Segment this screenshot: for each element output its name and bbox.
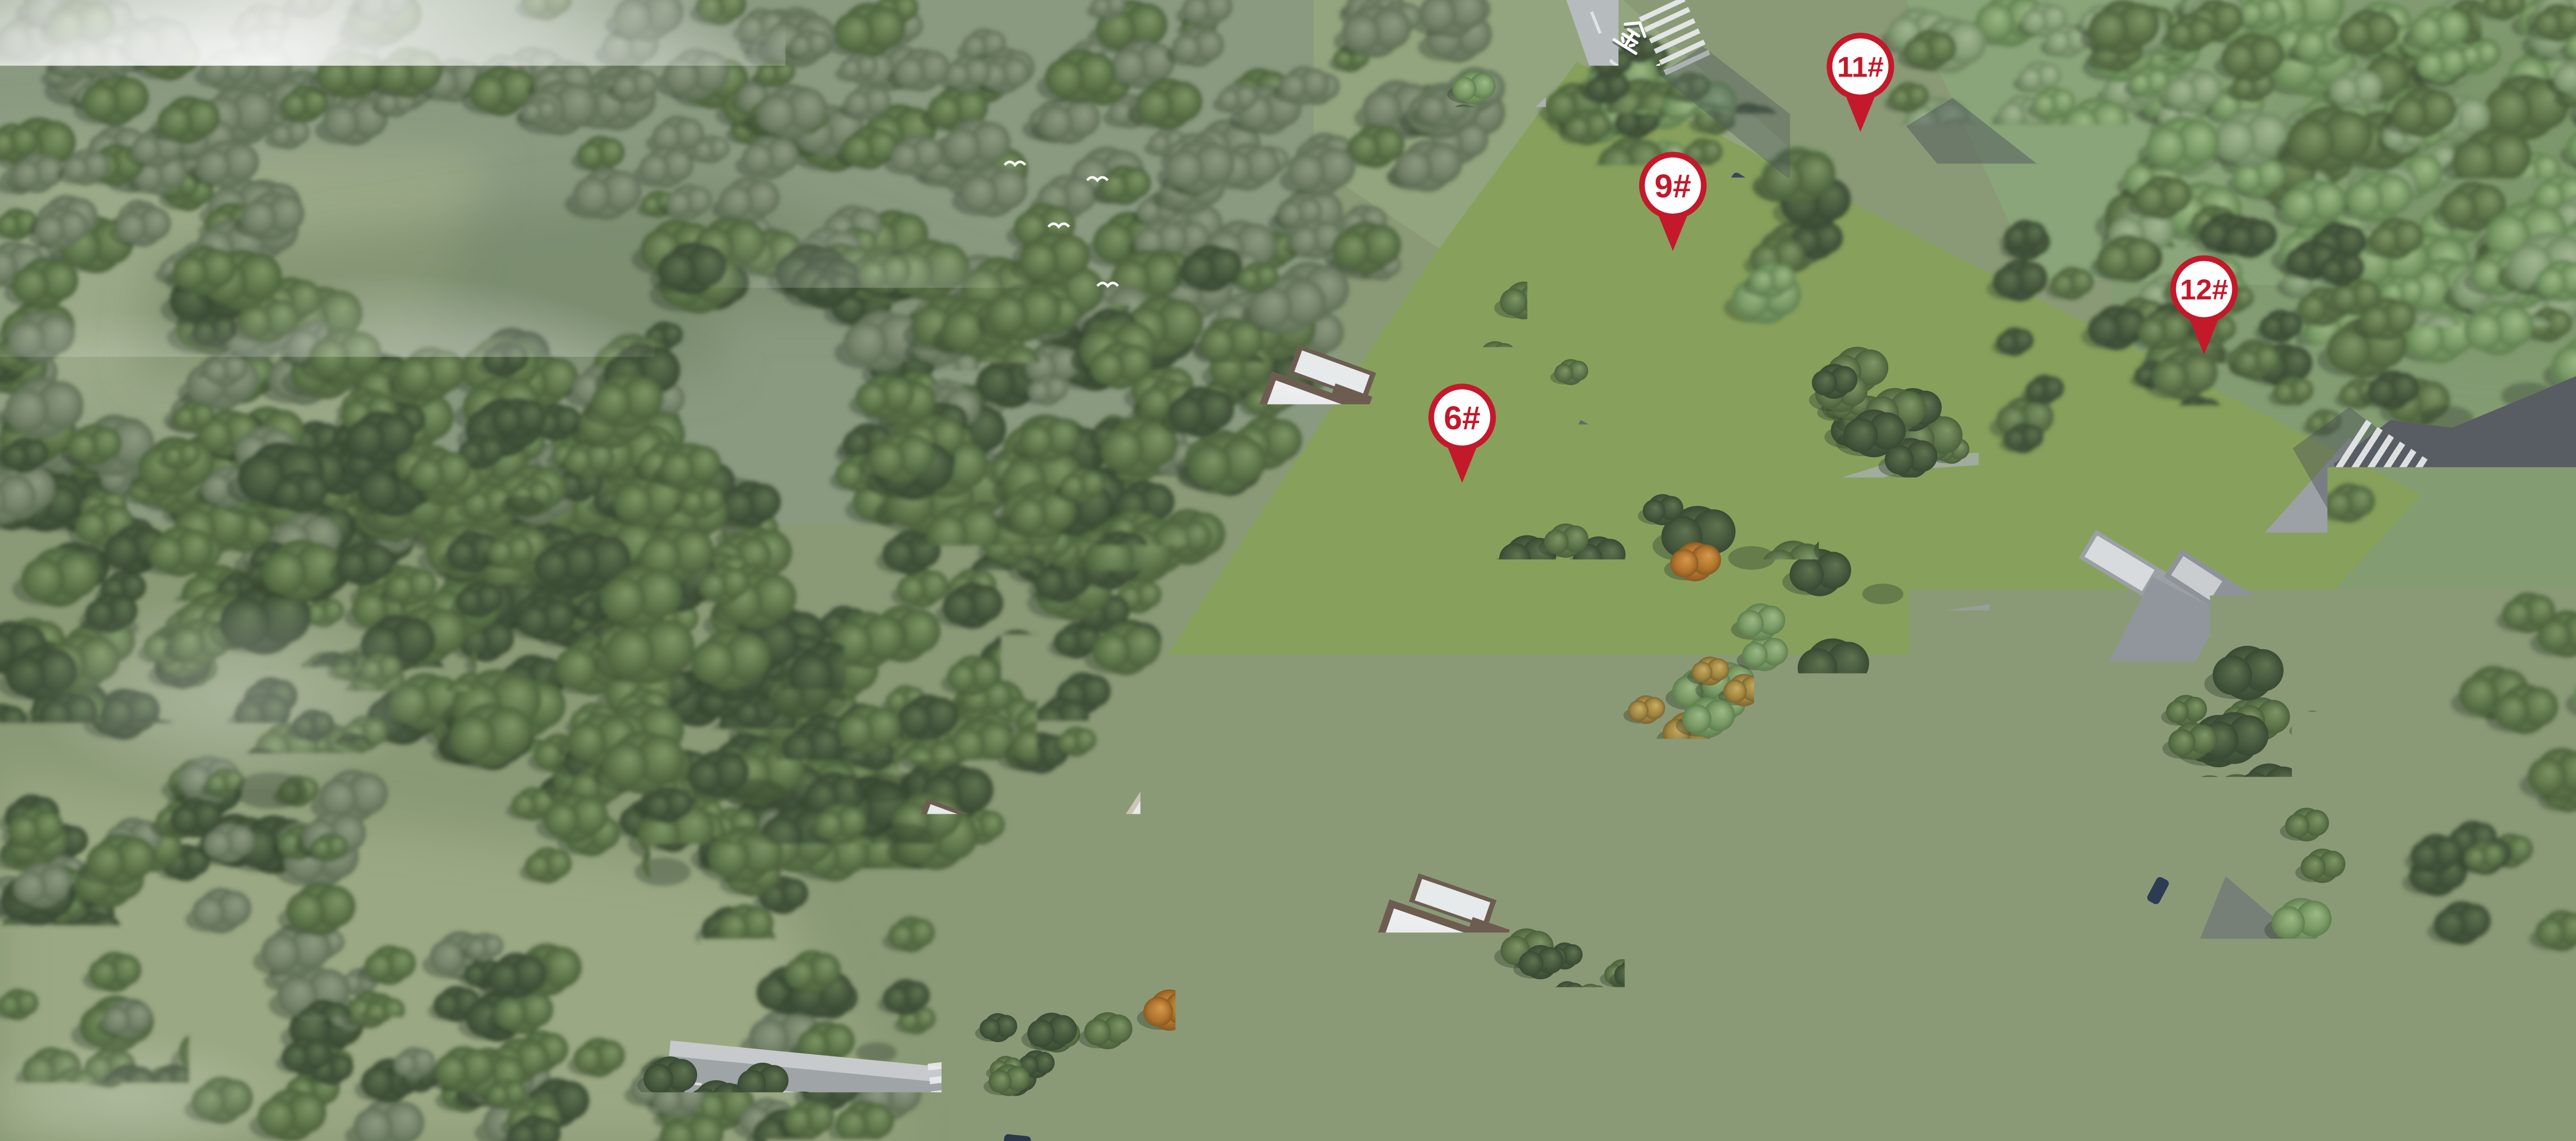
svg-text:9#: 9# <box>1654 167 1691 205</box>
svg-text:1#: 1# <box>1040 784 1077 821</box>
svg-text:6#: 6# <box>1444 399 1480 437</box>
svg-text:4#: 4# <box>1346 620 1382 657</box>
svg-text:12#: 12# <box>2180 273 2228 306</box>
svg-text:2#: 2# <box>1523 876 1560 913</box>
svg-text:11#: 11# <box>1837 51 1884 83</box>
svg-text:7#: 7# <box>1996 490 2032 527</box>
